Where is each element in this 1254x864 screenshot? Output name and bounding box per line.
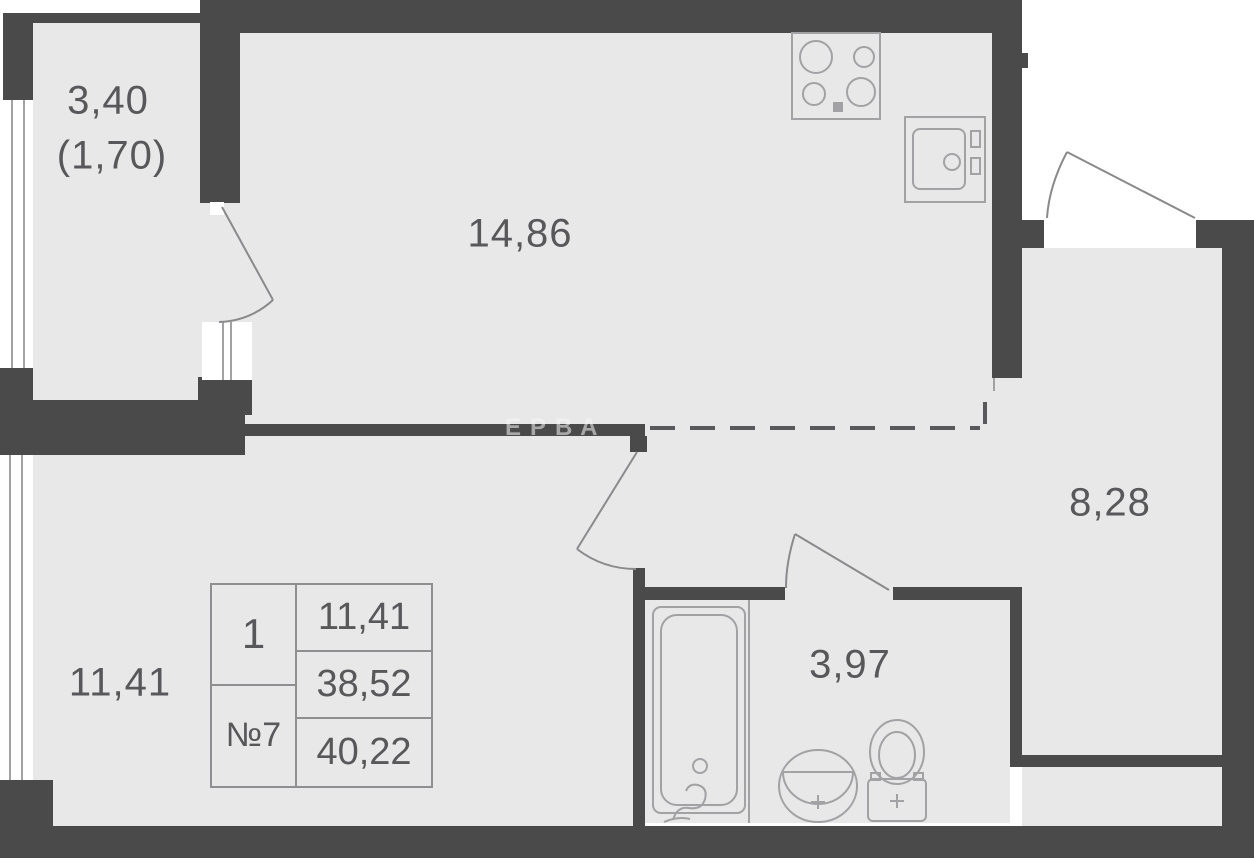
bathroom-area-label: 3,97: [809, 643, 891, 688]
bathtub-icon: [653, 600, 749, 823]
balcony-area-reduced-label: (1,70): [57, 134, 168, 179]
bedroom-area-label: 11,41: [69, 661, 171, 706]
kitchen-living-area-label: 14,86: [467, 212, 572, 257]
floor-plan: 3,40 (1,70) 14,86 8,28 11,41 3,97 ЕРВА 1…: [0, 0, 1254, 864]
area-without-summer-cell: 38,52: [297, 652, 431, 719]
bedroom-door-swing-icon: [577, 452, 637, 569]
plan-symbols-layer: [0, 0, 1254, 864]
stamp-left-column: 1 №7: [212, 585, 297, 786]
hallway-area-label: 8,28: [1069, 481, 1151, 526]
entrance-door-swing-icon: [1047, 152, 1195, 218]
apartment-stamp-table: 1 №7 11,41 38,52 40,22: [210, 583, 433, 788]
washbasin-icon: [779, 750, 857, 822]
watermark-fragment: ЕРВА: [505, 414, 606, 442]
rooms-count-cell: 1: [212, 585, 295, 686]
stove-icon: [792, 33, 880, 119]
toilet-icon: [868, 720, 926, 821]
living-area-cell: 11,41: [297, 585, 431, 652]
balcony-area-label: 3,40: [67, 79, 149, 124]
dashed-boundary-icon: [650, 378, 994, 428]
apartment-number-cell: №7: [212, 686, 295, 787]
bathroom-door-swing-icon: [786, 534, 889, 590]
stamp-right-column: 11,41 38,52 40,22: [297, 585, 431, 786]
balcony-door-swing-icon: [219, 207, 273, 322]
total-area-cell: 40,22: [297, 719, 431, 786]
kitchen-sink-icon: [905, 117, 985, 202]
